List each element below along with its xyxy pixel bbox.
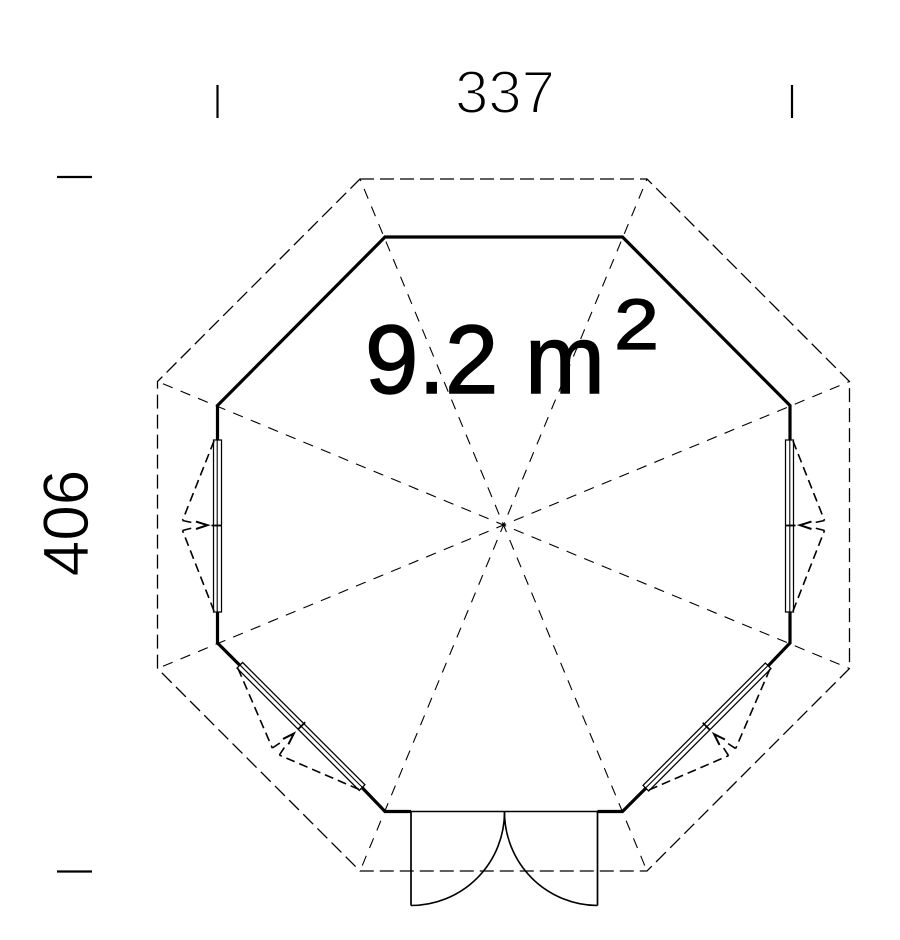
svg-text:2: 2 bbox=[614, 286, 659, 365]
svg-text:406: 406 bbox=[30, 470, 102, 577]
svg-text:337: 337 bbox=[455, 59, 555, 126]
svg-text:9.2 m: 9.2 m bbox=[365, 305, 605, 414]
